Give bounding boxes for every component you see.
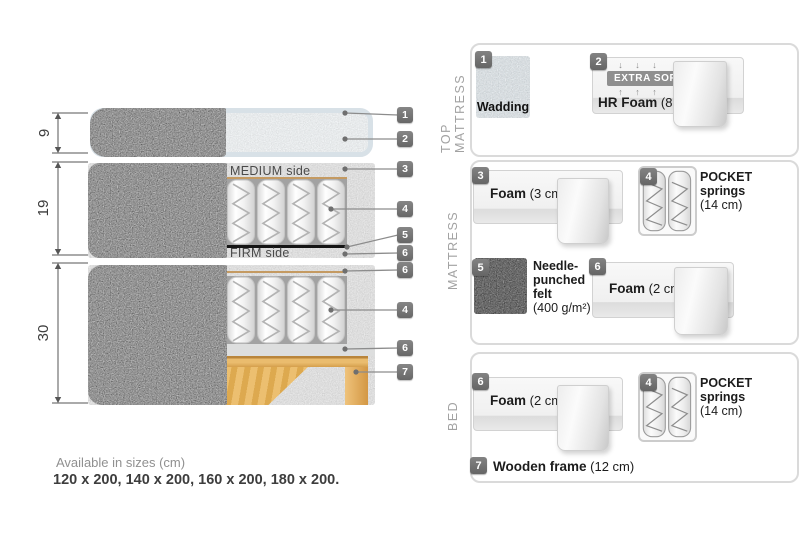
pocket-springs-size-bed: (14 cm) — [700, 404, 742, 418]
bed-pocket-springs-illustration — [226, 276, 347, 344]
pocket-springs-graphic — [226, 179, 347, 245]
dimension-label-19: 19 — [33, 195, 53, 221]
panel-bed-title: BED — [444, 352, 462, 479]
bed-construction-infographic: MEDIUM side FIRM side — [0, 0, 800, 533]
callout-2: 2 — [397, 131, 413, 147]
callout-4: 4 — [397, 201, 413, 217]
legend-badge-5: 5 — [472, 259, 489, 276]
bed-tan-line — [225, 271, 347, 273]
pocket-springs-name-bed: POCKET springs — [700, 376, 752, 404]
dimension-label-30: 30 — [33, 320, 53, 346]
callout-6c: 6 — [397, 340, 413, 356]
fabric-texture — [90, 108, 226, 157]
wood-board — [225, 356, 368, 367]
foam2-name-mattress: Foam — [609, 281, 645, 296]
foam2-flap-mattress — [674, 267, 728, 335]
panel-mattress-title: MATTRESS — [444, 160, 462, 341]
callout-1: 1 — [397, 107, 413, 123]
legend-badge-6b: 6 — [472, 373, 489, 390]
pocket-springs-size-mattress: (14 cm) — [700, 198, 742, 212]
legend-badge-3: 3 — [472, 167, 489, 184]
wadding-label: Wadding — [474, 100, 532, 114]
callout-3: 3 — [397, 161, 413, 177]
callout-4b: 4 — [397, 302, 413, 318]
legend-badge-6a: 6 — [589, 258, 606, 275]
fabric-cover-bed — [88, 265, 227, 405]
legend-badge-2: 2 — [590, 53, 607, 70]
bed-foam-strip — [225, 344, 375, 356]
fabric-texture — [88, 163, 227, 258]
soft-arrows-down: ↓ ↓ ↓ — [600, 60, 680, 70]
hr-foam-flap — [673, 61, 727, 127]
dimension-label-9: 9 — [34, 123, 54, 143]
mattress-pocket-springs-illustration — [226, 179, 347, 245]
fabric-texture — [88, 265, 227, 405]
callout-6b: 6 — [397, 262, 413, 278]
medium-side-label: MEDIUM side — [230, 164, 310, 178]
firm-side-label: FIRM side — [230, 246, 290, 260]
legend-badge-1: 1 — [475, 51, 492, 68]
sizes-title: Available in sizes (cm) — [56, 455, 185, 470]
pocket-springs-graphic — [226, 276, 347, 344]
legend-badge-4a: 4 — [640, 168, 657, 185]
felt-name: Needle- punched felt — [533, 259, 585, 301]
foam3-flap — [557, 178, 609, 244]
wooden-frame-size: (12 cm) — [590, 459, 634, 474]
fabric-cover-mattress — [88, 163, 227, 258]
fabric-cover-top-mattress — [90, 108, 226, 157]
foam2-label-bed: Foam (2 cm) — [490, 393, 566, 408]
callout-6a: 6 — [397, 245, 413, 261]
pocket-springs-name-mattress: POCKET springs — [700, 170, 752, 198]
hr-foam-name: HR Foam — [598, 95, 657, 110]
panel-top-mattress-title: TOP MATTRESS — [444, 43, 462, 153]
legend-badge-7: 7 — [470, 457, 487, 474]
foam2-name-bed: Foam — [490, 393, 526, 408]
foam3-name: Foam — [490, 186, 526, 201]
wooden-frame-label: Wooden frame (12 cm) — [493, 459, 634, 474]
foam2-flap-bed — [557, 385, 609, 451]
callout-5: 5 — [397, 227, 413, 243]
felt-size: (400 g/m²) — [533, 301, 591, 315]
callout-7: 7 — [397, 364, 413, 380]
wood-post — [345, 367, 368, 405]
wooden-frame-name: Wooden frame — [493, 459, 587, 474]
legend-badge-4b: 4 — [640, 374, 657, 391]
foam3-label: Foam (3 cm) — [490, 186, 566, 201]
sizes-values: 120 x 200, 140 x 200, 160 x 200, 180 x 2… — [53, 472, 339, 488]
